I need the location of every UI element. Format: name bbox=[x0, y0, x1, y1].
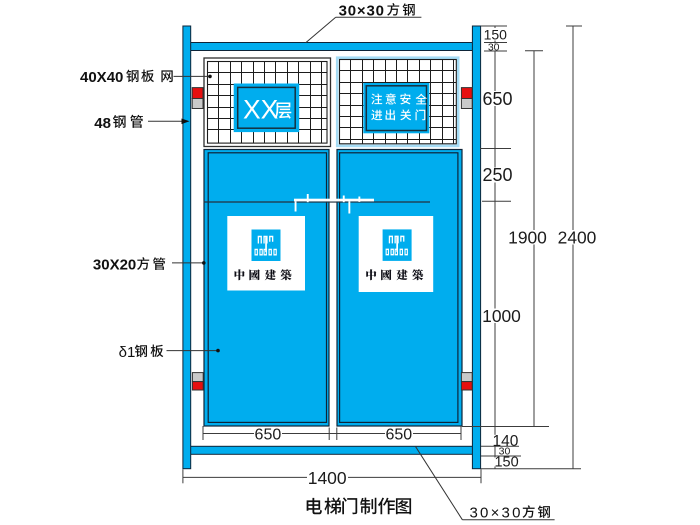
svg-text:40X40: 40X40 bbox=[80, 69, 123, 86]
svg-text:150: 150 bbox=[494, 454, 518, 470]
svg-text:2400: 2400 bbox=[558, 227, 597, 247]
svg-text:650: 650 bbox=[482, 89, 512, 109]
svg-text:650: 650 bbox=[385, 426, 412, 443]
svg-text:48: 48 bbox=[94, 115, 111, 132]
svg-text:30×30: 30×30 bbox=[470, 505, 523, 522]
svg-text:30X20: 30X20 bbox=[93, 257, 136, 274]
svg-text:150: 150 bbox=[484, 26, 508, 42]
svg-text:1400: 1400 bbox=[308, 468, 347, 488]
svg-text:XX: XX bbox=[243, 95, 279, 125]
svg-text:250: 250 bbox=[482, 165, 512, 185]
svg-text:δ1: δ1 bbox=[119, 344, 136, 361]
svg-text:1900: 1900 bbox=[508, 227, 547, 247]
svg-text:650: 650 bbox=[255, 426, 282, 443]
svg-text:1000: 1000 bbox=[482, 306, 521, 326]
svg-text:30: 30 bbox=[488, 41, 500, 53]
